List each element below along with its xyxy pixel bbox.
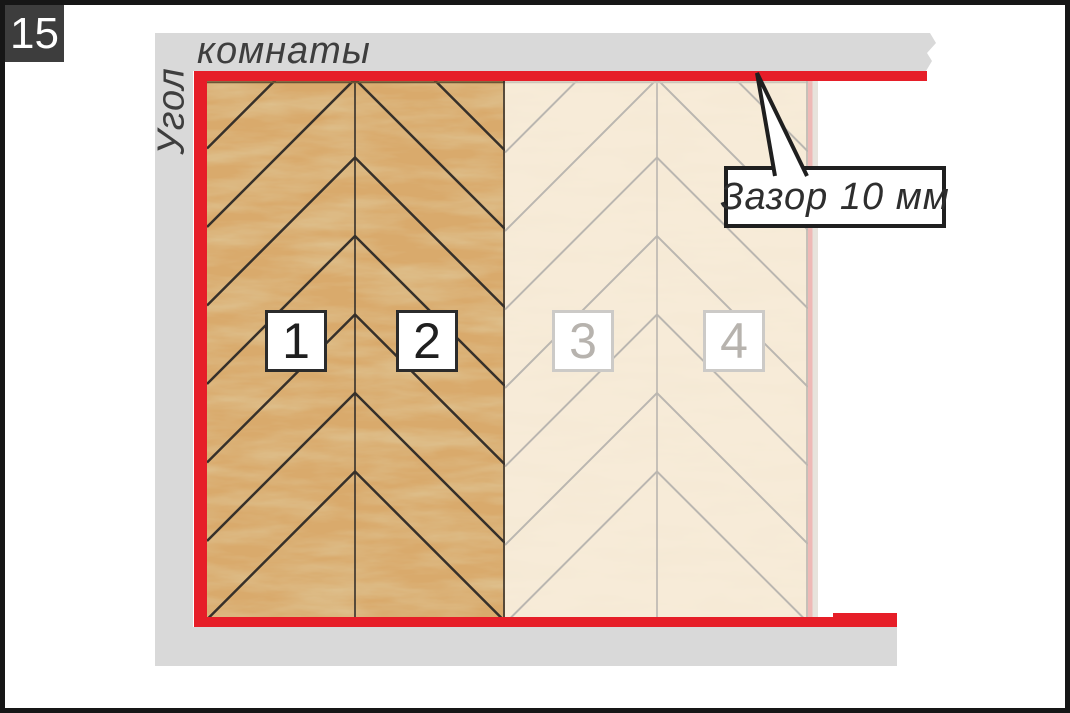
plank-label-3-text: 3 bbox=[569, 312, 597, 370]
plank-label-1: 1 bbox=[265, 310, 327, 372]
plank-label-3: 3 bbox=[552, 310, 614, 372]
parquet-installed-section bbox=[207, 81, 505, 617]
step-number-badge: 15 bbox=[5, 5, 64, 62]
gap-callout-text: Зазор 10 мм bbox=[720, 176, 950, 219]
plank-label-2: 2 bbox=[396, 310, 458, 372]
wall-label-vertical: Угол bbox=[151, 67, 194, 155]
plank-label-1-text: 1 bbox=[282, 312, 310, 370]
gap-callout-pointer bbox=[740, 68, 820, 180]
wall-label-horizontal: комнаты bbox=[197, 30, 371, 73]
gap-line-bottom-step bbox=[833, 613, 897, 619]
wall-bottom-band bbox=[155, 627, 897, 666]
diagram-canvas: комнаты Угол bbox=[0, 0, 1070, 713]
plank-label-4-text: 4 bbox=[720, 312, 748, 370]
step-number-text: 15 bbox=[10, 9, 59, 59]
plank-label-2-text: 2 bbox=[413, 312, 441, 370]
gap-line-bottom bbox=[194, 617, 897, 627]
gap-line-left bbox=[194, 71, 207, 627]
plank-label-4: 4 bbox=[703, 310, 765, 372]
